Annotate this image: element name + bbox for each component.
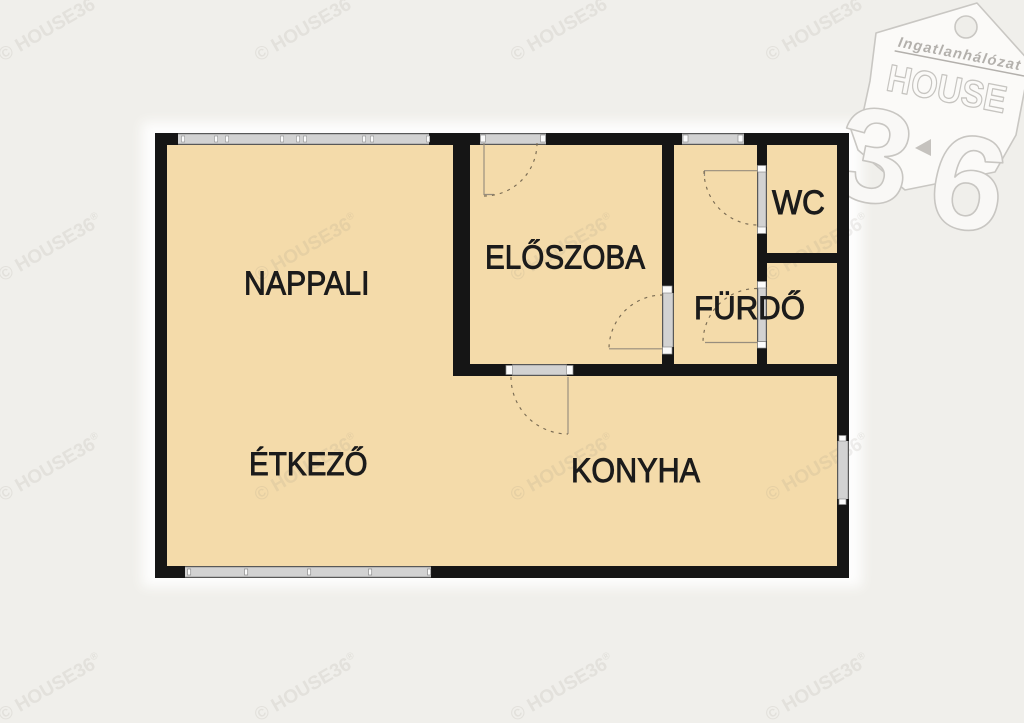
svg-text:ÉTKEZŐ: ÉTKEZŐ xyxy=(249,445,368,482)
svg-text:KONYHA: KONYHA xyxy=(571,452,700,490)
svg-text:WC: WC xyxy=(772,184,825,222)
svg-text:ELŐSZOBA: ELŐSZOBA xyxy=(485,238,646,276)
svg-text:NAPPALI: NAPPALI xyxy=(244,266,370,303)
svg-text:FÜRDŐ: FÜRDŐ xyxy=(694,289,805,326)
